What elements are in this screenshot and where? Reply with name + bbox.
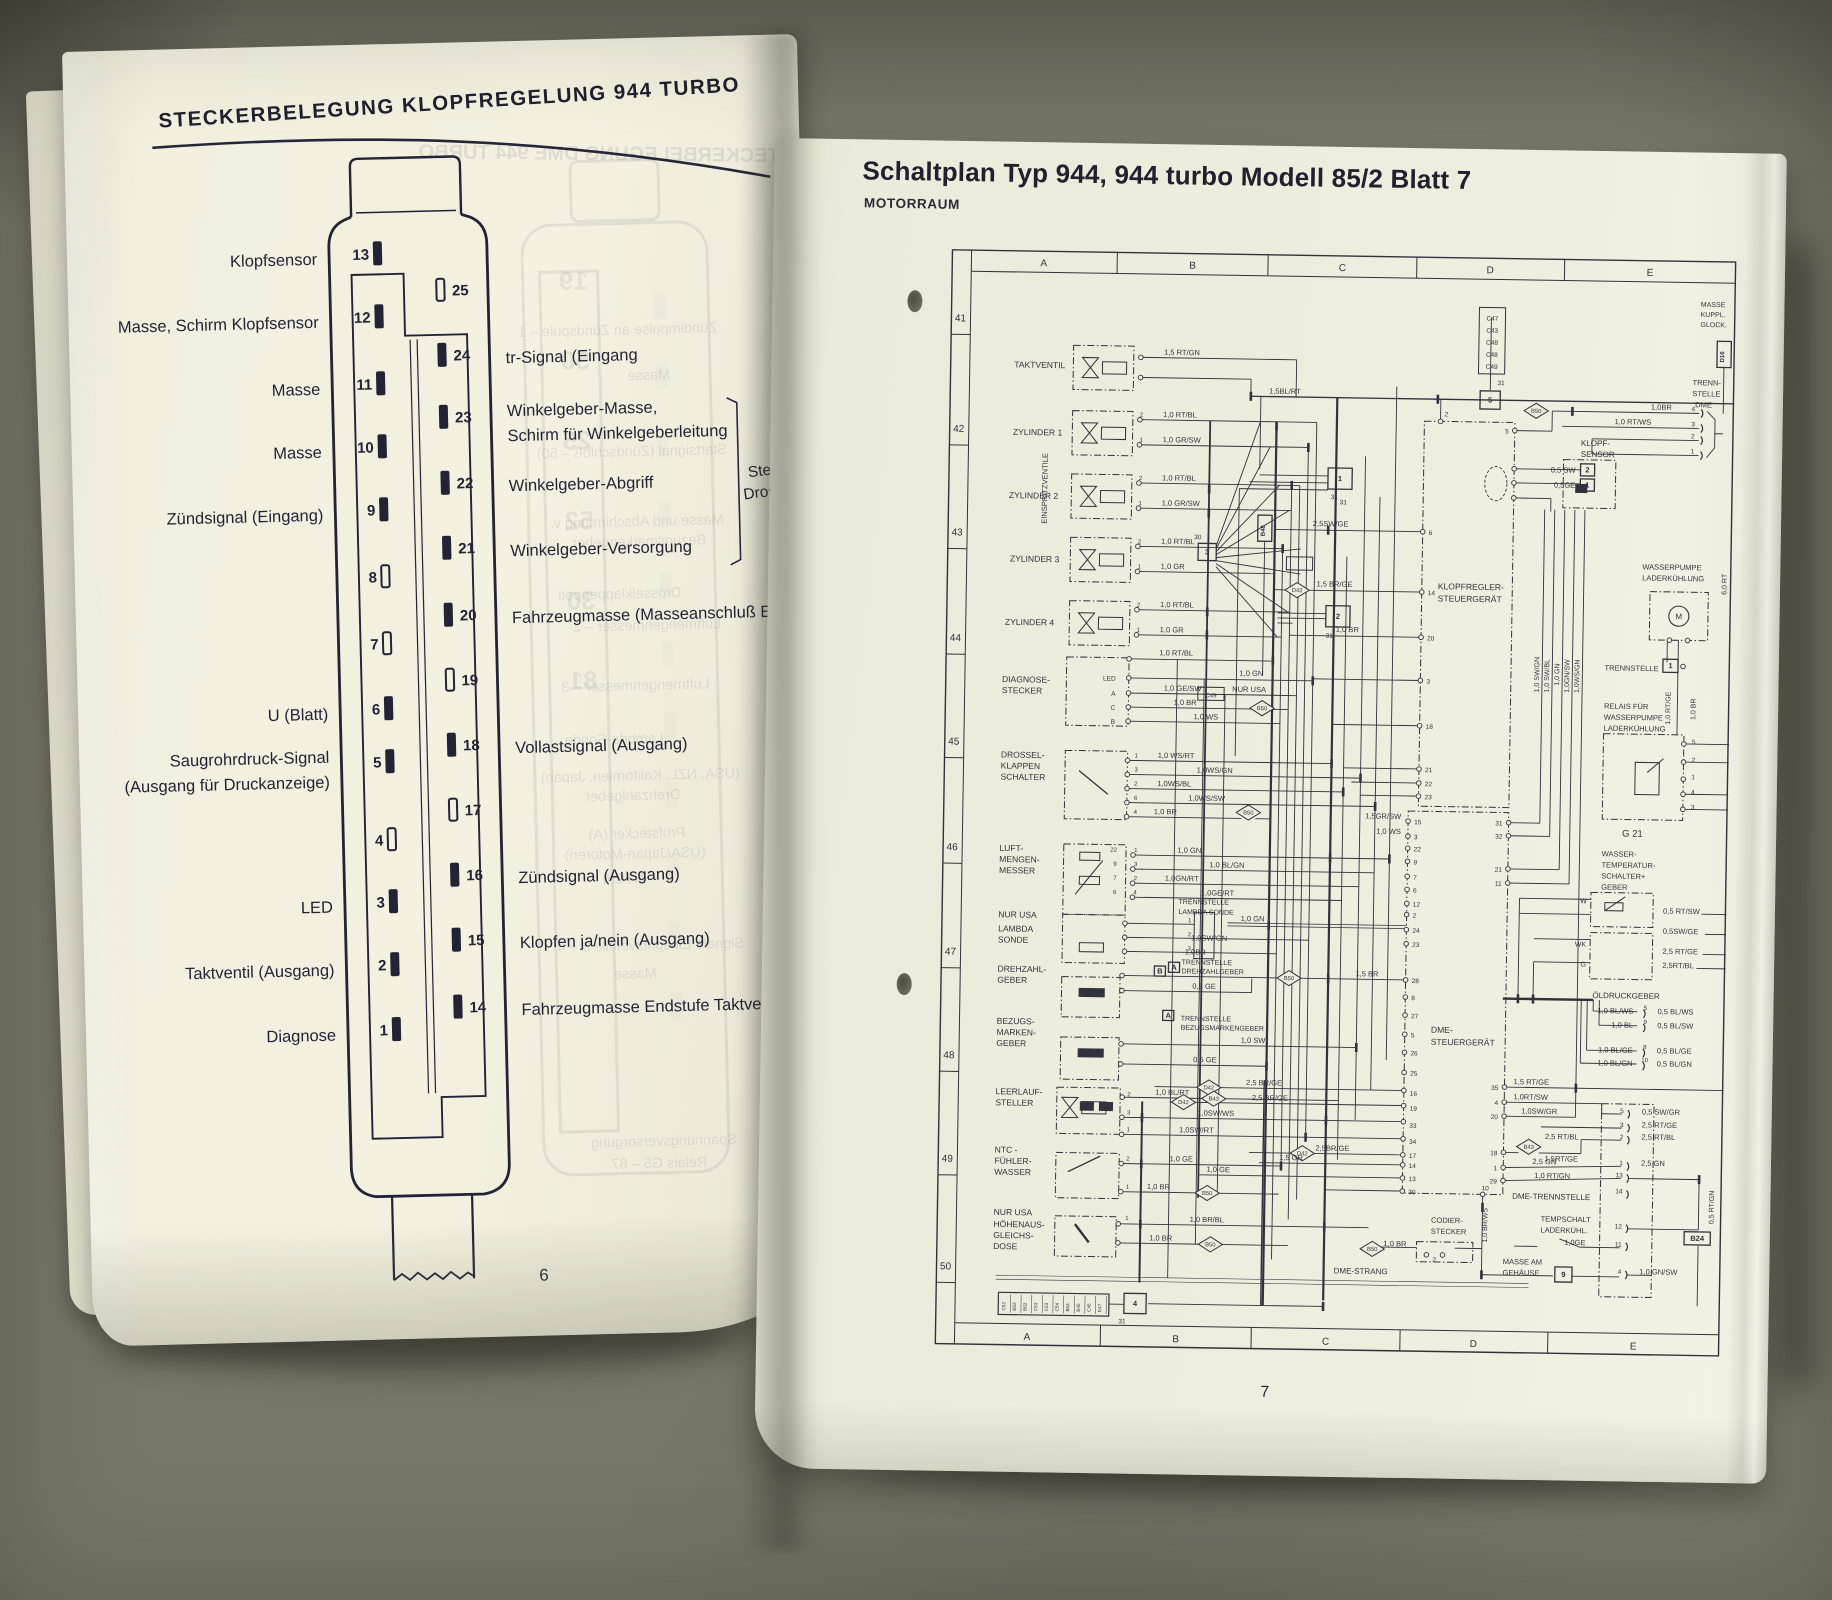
- wire-label: GEBER: [1601, 882, 1628, 891]
- strip-code: C45: [1086, 1303, 1091, 1312]
- wire-label: 31: [1340, 499, 1348, 506]
- wire: [1139, 445, 1308, 448]
- wire-label: 22: [1425, 781, 1433, 788]
- pin-terminal: [1401, 1119, 1406, 1124]
- print-through-ghost: 195025523081Zündimpulse an Zündspule – 1…: [418, 132, 818, 1178]
- wire-label: 1,0 BL/WS: [1597, 1006, 1633, 1016]
- pin-contact-filled: [376, 371, 386, 395]
- wire-label: 1,5 GR: [1279, 1153, 1304, 1162]
- wire-label: 1,0 GR/SW: [1163, 435, 1202, 445]
- pin-terminal: [1118, 1062, 1123, 1067]
- pin-terminal: [1400, 1163, 1405, 1168]
- pin-contact-filled: [444, 603, 454, 627]
- pin-contact-filled: [447, 733, 457, 757]
- strip-code: B52: [1012, 1302, 1017, 1311]
- junction-mark: [1271, 657, 1274, 666]
- wire-label: SONDE: [998, 934, 1029, 944]
- valve-symbol: [1078, 613, 1094, 633]
- pin-terminal: [1505, 881, 1510, 886]
- wire: [1133, 869, 1374, 873]
- wire-label: STELLER: [995, 1097, 1033, 1108]
- wire-label: 1,0SW/WS: [1197, 1108, 1234, 1118]
- wire-label: 1,0 RT/BL: [1159, 648, 1193, 658]
- wire-label: 1,0 WS: [1193, 712, 1218, 721]
- wire: [1118, 1224, 1368, 1228]
- wire-label: 1,0 BR: [1690, 698, 1697, 720]
- pin-label: Zündsignal (Ausgang): [518, 865, 680, 887]
- wire-label: ZYLINDER 1: [1013, 427, 1063, 438]
- ghost-text: Spannungsversorgung: [591, 1132, 737, 1152]
- wire-label: 2,5 GN: [1641, 1159, 1665, 1168]
- pin-terminal: [1417, 723, 1422, 728]
- ghost-text: Masse: [614, 966, 657, 983]
- pin-number: 12: [354, 310, 371, 327]
- wire-label: 1: [1135, 753, 1139, 759]
- wire-label: 2: [1692, 757, 1696, 764]
- wire: [1541, 1127, 1621, 1128]
- wire-label: 30: [1194, 534, 1202, 541]
- pin-terminal: [1126, 719, 1131, 724]
- pin-number: 13: [352, 247, 369, 264]
- junction-mark: [1327, 974, 1330, 983]
- wire: [1122, 991, 1252, 993]
- pin-terminal: [1405, 846, 1410, 851]
- pin-label: Winkelgeber-Versorgung: [510, 538, 692, 560]
- pin-number: 23: [455, 409, 472, 426]
- wire-label: 22: [1110, 848, 1117, 854]
- wire: [1697, 1246, 1698, 1306]
- wire-label: EINSPRITZVENTILE: [1040, 453, 1050, 524]
- wire-label: 6,0 RT: [1721, 573, 1728, 595]
- wire: [1127, 774, 1360, 778]
- wire: [1503, 999, 1593, 1000]
- cable-cut-squiggle: [394, 1271, 474, 1280]
- switch-lever: [1075, 1224, 1089, 1242]
- pin-contact-hollow: [446, 669, 455, 691]
- junction-mark: [1359, 774, 1362, 783]
- wire-label: 31: [1495, 820, 1503, 827]
- numbered-box-label: 3: [1205, 547, 1209, 556]
- diamond-code: B50: [1284, 976, 1295, 982]
- junction-mark: [1388, 854, 1391, 863]
- wire: [1575, 510, 1585, 1117]
- wire-label: 1: [1691, 448, 1695, 455]
- pin-terminal: [1420, 529, 1425, 534]
- numbered-box-label: 2: [1585, 465, 1589, 474]
- pin-terminal: [1440, 1253, 1445, 1258]
- column-letter: E: [1647, 268, 1654, 279]
- pin-terminal: [1667, 638, 1672, 643]
- wire-label: 1,0 GN: [1554, 663, 1561, 685]
- pin-contact-hollow: [436, 279, 445, 301]
- junction-mark: [1139, 1220, 1142, 1229]
- wire-label: NUR USA: [998, 909, 1037, 920]
- wire-label: 1,0SW/GR: [1521, 1106, 1558, 1116]
- wire-label: TEMPERATUR-: [1601, 860, 1655, 870]
- pin-terminal: [1506, 867, 1511, 872]
- wire-label: 23: [1412, 942, 1420, 949]
- pin-contact-filled: [440, 471, 450, 495]
- wire-label: DREHZAHLGEBER: [1181, 968, 1243, 976]
- component-box: [1402, 811, 1509, 1195]
- wire: [1533, 962, 1534, 999]
- wire: [1132, 897, 1341, 900]
- pin-terminal: [1506, 833, 1511, 838]
- component-box: [1072, 411, 1133, 456]
- row-number: 42: [953, 424, 965, 435]
- wire-label: 32: [1495, 834, 1503, 841]
- row-number: 43: [951, 527, 963, 538]
- wire-label: 1,0GN/SW: [1564, 659, 1572, 693]
- strip-code: C52: [1001, 1302, 1006, 1311]
- pin-terminal: [1125, 758, 1130, 763]
- wire-label: 16: [1410, 1091, 1418, 1098]
- pin-terminal: [1402, 1088, 1407, 1093]
- row-number: 45: [948, 736, 960, 747]
- wire-label: MARKEN-: [996, 1027, 1036, 1038]
- wire-label: 2,5 RT/BL: [1641, 1133, 1675, 1143]
- wire: [1215, 564, 1288, 612]
- wire-label: G: [1580, 962, 1586, 969]
- wire-label: 0,5 BL/SW: [1657, 1021, 1694, 1031]
- wire-label: 1: [1134, 848, 1138, 854]
- ghost-pin: [653, 292, 666, 318]
- numbered-box-label: B24: [1690, 1234, 1705, 1243]
- pin-terminal: [1416, 781, 1421, 786]
- schematic-content: AABBCCDDEE41424344454647484950512349211B…: [935, 250, 1736, 1356]
- wire-label: 1,0 BL/RT: [1155, 1088, 1189, 1098]
- wire-label: 5: [1411, 1032, 1415, 1039]
- numbered-box-label: 2: [1336, 612, 1340, 621]
- wire-label: STECKER: [1431, 1227, 1467, 1237]
- wire-label: 1,0 GN: [1177, 846, 1201, 855]
- junction-mark: [1281, 544, 1284, 553]
- pin-number: 21: [458, 540, 475, 557]
- component-box: [1602, 734, 1684, 821]
- wire-label: 0,5 GE: [1192, 982, 1216, 991]
- diamond-code: B50: [1257, 706, 1268, 712]
- wire-label: 12: [1413, 902, 1421, 909]
- wire-label: 1: [1619, 1160, 1623, 1167]
- column-letter: D: [1486, 265, 1493, 276]
- wire-label: 1,0WS/GN: [1574, 659, 1582, 693]
- ghost-digit: 19: [558, 265, 588, 296]
- wire: [1508, 836, 1549, 837]
- pin-number: 6: [372, 701, 381, 718]
- temp-switch-lever: [1605, 897, 1625, 911]
- ghost-pin: [662, 642, 675, 668]
- wire-label: 1,5GR/SW: [1365, 811, 1402, 821]
- wire-label: 7: [1413, 874, 1417, 881]
- wire-label: ZYLINDER 2: [1009, 490, 1059, 501]
- wire-label: GEBER: [997, 975, 1027, 985]
- wire-label: HÖHENAUS-: [993, 1219, 1045, 1230]
- wire: [1332, 724, 1419, 725]
- wire-label: 5: [1620, 1108, 1624, 1115]
- wire-label: LAMBDA: [998, 923, 1034, 934]
- ghost-text: (USA, NZL, Kalifornien, Japan): [541, 766, 740, 787]
- wire-label: 1: [1140, 438, 1144, 444]
- column-letter: B: [1189, 261, 1196, 272]
- wire-label: 35: [1491, 1085, 1499, 1092]
- wire-label: 6: [1413, 888, 1417, 895]
- column-letter: A: [1040, 258, 1047, 269]
- wire-label: KUPPL.: [1701, 312, 1726, 319]
- wire: [1128, 721, 1280, 723]
- pin-contact-filled: [379, 497, 389, 521]
- wire-label: LEERLAUF-: [996, 1086, 1043, 1097]
- pin-terminal: [1119, 1132, 1124, 1137]
- wire-label: DME-STRANG: [1334, 1266, 1388, 1276]
- diamond-code: B50: [1367, 1247, 1378, 1253]
- wire: [1138, 508, 1291, 510]
- wire-label: 23: [1424, 794, 1432, 801]
- wire-label: 31: [1331, 494, 1339, 501]
- pin-number: 14: [469, 999, 487, 1016]
- pin-terminal: [1405, 887, 1410, 892]
- pin-label: Masse, Schirm Klopfsensor: [118, 314, 320, 337]
- pin-terminal: [1419, 590, 1424, 595]
- wire-label: 1,0 SW/GN: [1534, 657, 1542, 693]
- separation-point-arrow: [1626, 1191, 1628, 1199]
- wire: [1239, 489, 1327, 490]
- pin-terminal: [1681, 777, 1686, 782]
- pin-terminal: [1403, 995, 1408, 1000]
- wire: [1628, 1229, 1698, 1230]
- wire: [1137, 571, 1274, 573]
- wire: [1137, 635, 1282, 637]
- wire-label: 1,0SW/GN: [1191, 933, 1227, 943]
- bus-wire: [1371, 497, 1380, 1090]
- wire-label: 1: [1125, 1216, 1129, 1222]
- junction-mark: [1323, 1222, 1326, 1231]
- wire-label: 1,0WS/GN: [1197, 766, 1233, 776]
- ghost-text: Masse: [627, 367, 670, 384]
- numbered-box-label: 1: [1585, 481, 1589, 490]
- wire-label: STEUERGERÄT: [1438, 593, 1503, 604]
- row-number: 48: [943, 1050, 955, 1061]
- wire-label: 6: [1113, 890, 1117, 896]
- wire-label: LADERKÜHL.: [1540, 1225, 1587, 1235]
- wire-label: 1,0 WS/RT: [1158, 751, 1195, 761]
- pin-number: 22: [456, 475, 473, 492]
- pin-terminal: [1681, 760, 1686, 765]
- wire-label: 14: [1409, 1163, 1417, 1170]
- diamond-code: B50: [1243, 810, 1254, 816]
- pin-number: 10: [357, 440, 374, 457]
- wire-label: 1,0 GR: [1161, 562, 1186, 571]
- wire: [1127, 817, 1242, 819]
- wire-label: 14: [1428, 590, 1436, 597]
- wire-label: BEZUGSMARKENGEBER: [1181, 1025, 1265, 1033]
- pin-contact-filled: [453, 995, 463, 1019]
- junction-mark: [1355, 1043, 1358, 1052]
- wire-label: TRENN-: [1692, 378, 1721, 387]
- wire-label: WASSERPUMPE: [1604, 713, 1663, 723]
- pin-terminal: [1404, 941, 1409, 946]
- diamond-code: B50: [1531, 409, 1542, 415]
- wire: [1215, 1193, 1278, 1194]
- pin-label: Masse: [273, 444, 322, 463]
- junction-mark: [1206, 607, 1209, 616]
- wire-label: TEMPSCHALT: [1541, 1214, 1592, 1224]
- junction-mark: [1322, 1302, 1325, 1311]
- wire-label: 1,0 BL: [1611, 1020, 1633, 1029]
- pin-terminal: [1512, 466, 1517, 471]
- injector-body: [1098, 617, 1122, 629]
- junction-mark: [1325, 1116, 1328, 1125]
- wire: [1313, 679, 1421, 681]
- component-box: [1060, 1037, 1119, 1080]
- wire-label: 1,0 GN: [1241, 914, 1265, 923]
- ghost-text: Drosselklappenpoti: [558, 585, 682, 604]
- wire: [1684, 744, 1729, 745]
- wire-label: 1,0 BR/BL: [1190, 1215, 1224, 1225]
- separation-point-arrow: [1627, 1162, 1629, 1170]
- column-letter: B: [1172, 1334, 1179, 1345]
- ghost-text: Zündimpulse an Zündspule – 1: [518, 320, 717, 341]
- junction-mark: [1275, 421, 1278, 430]
- wire-label: 1,0 BR: [1154, 807, 1178, 816]
- wire-label: 2: [1140, 413, 1144, 419]
- ghost-text: (USA/Japan-Motoren): [565, 845, 706, 864]
- wire-label: C49: [1205, 693, 1217, 699]
- wire: [1580, 1000, 1581, 1063]
- wire-label: 18: [1490, 1150, 1498, 1157]
- wire-label: 3: [1426, 679, 1430, 686]
- wire-label: 1,0 BL/GN: [1209, 860, 1244, 870]
- wire: [1122, 1097, 1206, 1098]
- wire: [1508, 883, 1569, 884]
- wire-label: 27: [1411, 1013, 1419, 1020]
- wire-label: C43: [1486, 328, 1498, 335]
- pin-contact-filled: [392, 1017, 402, 1041]
- separation-point-arrow: [1627, 1136, 1629, 1144]
- wire-label: 3: [1620, 1122, 1624, 1129]
- valve-symbol: [1081, 423, 1097, 443]
- wire-label: 1,0 RT/GE: [1665, 691, 1673, 724]
- wire: [1683, 794, 1728, 795]
- wire-label: 1,5 RT/GN: [1164, 348, 1200, 358]
- pin-terminal: [1123, 921, 1128, 926]
- pin-terminal: [1125, 772, 1130, 777]
- separation-point-arrow: [1701, 424, 1703, 432]
- wire: [1587, 1000, 1588, 1050]
- wire: [1122, 1117, 1403, 1121]
- wire: [1552, 411, 1699, 413]
- wire-label: 1,0 BR: [1174, 698, 1198, 707]
- wire-label: ÖLDRUCKGEBER: [1592, 991, 1660, 1001]
- pin-contact-hollow: [388, 828, 397, 850]
- pin-terminal: [1501, 1150, 1506, 1155]
- diamond-code: B50: [1205, 1242, 1216, 1248]
- wire-label: 6: [1134, 796, 1138, 802]
- bus-wire: [1386, 387, 1397, 1061]
- wire-label: KLOPFREGLER-: [1438, 581, 1504, 592]
- wire: [1121, 1192, 1200, 1193]
- strip-code: B52: [1023, 1302, 1028, 1311]
- wire-label: 2,5BR/GE: [1315, 1143, 1349, 1153]
- pin-terminal: [1126, 676, 1131, 681]
- wire-label: WK: [1575, 941, 1587, 948]
- wire: [1127, 803, 1375, 807]
- junction-mark: [1517, 994, 1520, 1003]
- wire-label: 0,5GE: [1554, 481, 1575, 490]
- pin-number: 17: [464, 802, 481, 819]
- injector-body: [1101, 427, 1125, 439]
- pin-terminal: [1419, 635, 1424, 640]
- pin-number: 15: [468, 932, 485, 949]
- left-page-header: STECKERBELEGUNG KLOPFREGELUNG 944 TURBO: [158, 73, 741, 133]
- wire-label: 29: [1490, 1178, 1498, 1185]
- wire-label: 2: [1134, 782, 1138, 788]
- connector-cable: [392, 1194, 474, 1280]
- numbered-box-label: 4: [1133, 1299, 1138, 1308]
- pin-number: 9: [367, 502, 376, 519]
- junction-mark: [1304, 1133, 1307, 1142]
- wire: [1133, 855, 1389, 859]
- junction-mark: [1330, 759, 1333, 768]
- pin-terminal: [1138, 375, 1143, 380]
- wire-label: 3: [1134, 768, 1138, 774]
- wire: [1148, 1304, 1323, 1307]
- pin-terminal: [1406, 834, 1411, 839]
- wire-label: 2: [1620, 1134, 1624, 1141]
- pin-terminal: [1126, 705, 1131, 710]
- wire-label: 1,0 GR/SW: [1162, 498, 1201, 508]
- wire-label: C47: [1486, 316, 1498, 323]
- wire-label: WASSERPUMPE: [1642, 562, 1701, 572]
- wire-label: WASSER: [994, 1167, 1031, 1178]
- strip-code: B45: [1076, 1303, 1081, 1312]
- column-letter: C: [1339, 263, 1346, 274]
- wire: [1122, 1134, 1403, 1138]
- pin-number: 18: [463, 737, 480, 754]
- wire-label: 10: [1641, 1058, 1648, 1064]
- wire-label: 1: [1691, 774, 1695, 781]
- wire-label: DME-: [1431, 1025, 1453, 1035]
- wire-label: 17: [1409, 1153, 1417, 1160]
- numbered-box-label: A: [1171, 963, 1177, 972]
- junction-mark: [1329, 854, 1332, 863]
- wire-label: 9: [1113, 862, 1117, 868]
- wire-label: DREHZAHL-: [997, 964, 1046, 975]
- pin-terminal: [1405, 859, 1410, 864]
- wire-label: SENSOR: [1581, 450, 1615, 460]
- pin-terminal: [1512, 428, 1517, 433]
- pin-contact-hollow: [381, 565, 390, 587]
- wire-label: KLAPPEN: [1001, 760, 1041, 771]
- pin-label: Taktventil (Ausgang): [185, 962, 335, 984]
- pin-terminal: [1120, 1115, 1125, 1120]
- wire-label: 2: [1138, 539, 1142, 545]
- junction-mark: [1141, 1113, 1144, 1122]
- junction-mark: [1574, 1084, 1577, 1093]
- wire-label: 1,0 RT/BL: [1161, 537, 1195, 547]
- wire-label: 8: [1411, 995, 1415, 1002]
- potentiometer-arrow: [1079, 771, 1109, 795]
- wire-label: FÜHLER-: [994, 1156, 1031, 1167]
- wire-label: 2: [1445, 411, 1449, 418]
- wire: [1141, 377, 1252, 379]
- right-page-subtitle: MOTORRAUM: [864, 195, 960, 212]
- junction-mark: [1267, 921, 1270, 930]
- junction-mark: [1265, 1062, 1268, 1071]
- wire-label: 1,0 SW: [1241, 1036, 1267, 1045]
- pin-label: LED: [301, 899, 334, 918]
- valve-symbol: [1062, 1097, 1078, 1117]
- junction-mark: [1208, 485, 1211, 494]
